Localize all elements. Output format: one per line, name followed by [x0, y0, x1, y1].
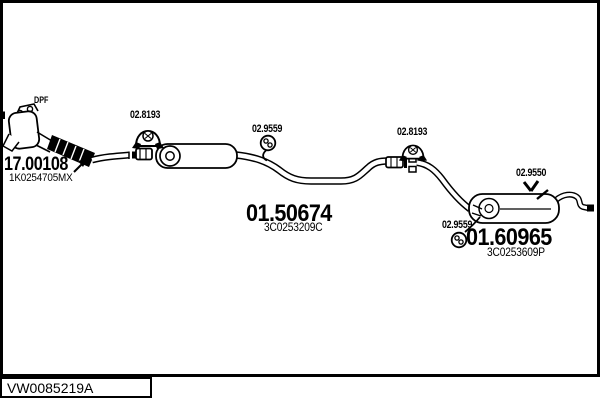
left-edge-marker: [0, 112, 5, 120]
clamp-front-part-number: 02.8193: [130, 110, 160, 121]
catalog-code-box: VW0085219A: [0, 377, 152, 398]
mid-pipe-drawing: [236, 155, 388, 181]
sleeve-joint-drawing: [136, 149, 152, 160]
front-pipe-drawing: [92, 152, 136, 161]
front-pipe-oem-number: 1K0254705MX: [9, 173, 73, 184]
clamp-icon-front: [132, 131, 164, 149]
tail-end-marker: [587, 205, 594, 212]
grommet-hanger-icon-rear: [452, 233, 467, 248]
dpf-catalyst-drawing: [0, 104, 52, 152]
dpf-tag-label: DPF: [34, 96, 48, 105]
hanger-mid-part-number: 02.9559: [252, 124, 282, 135]
catalog-code: VW0085219A: [7, 380, 93, 396]
mid-muffler-oem-number: 3C0253209C: [264, 221, 322, 233]
rear-muffler-oem-number: 3C0253609P: [487, 246, 545, 258]
rear-pipe-drawing: [417, 163, 470, 210]
grommet-hanger-icon-mid: [261, 136, 276, 161]
v-hanger-icon: [524, 181, 538, 191]
catalog-page: DPF 17.00108 1K0254705MX 02.8193 02.9559…: [0, 0, 600, 400]
mid-muffler-drawing: [156, 144, 237, 168]
clamp-rear-part-number: 02.8193: [397, 127, 427, 138]
tail-pipe-drawing: [556, 195, 594, 212]
hanger-top-part-number: 02.9550: [516, 168, 546, 179]
clamp-icon-rear: [399, 145, 427, 161]
